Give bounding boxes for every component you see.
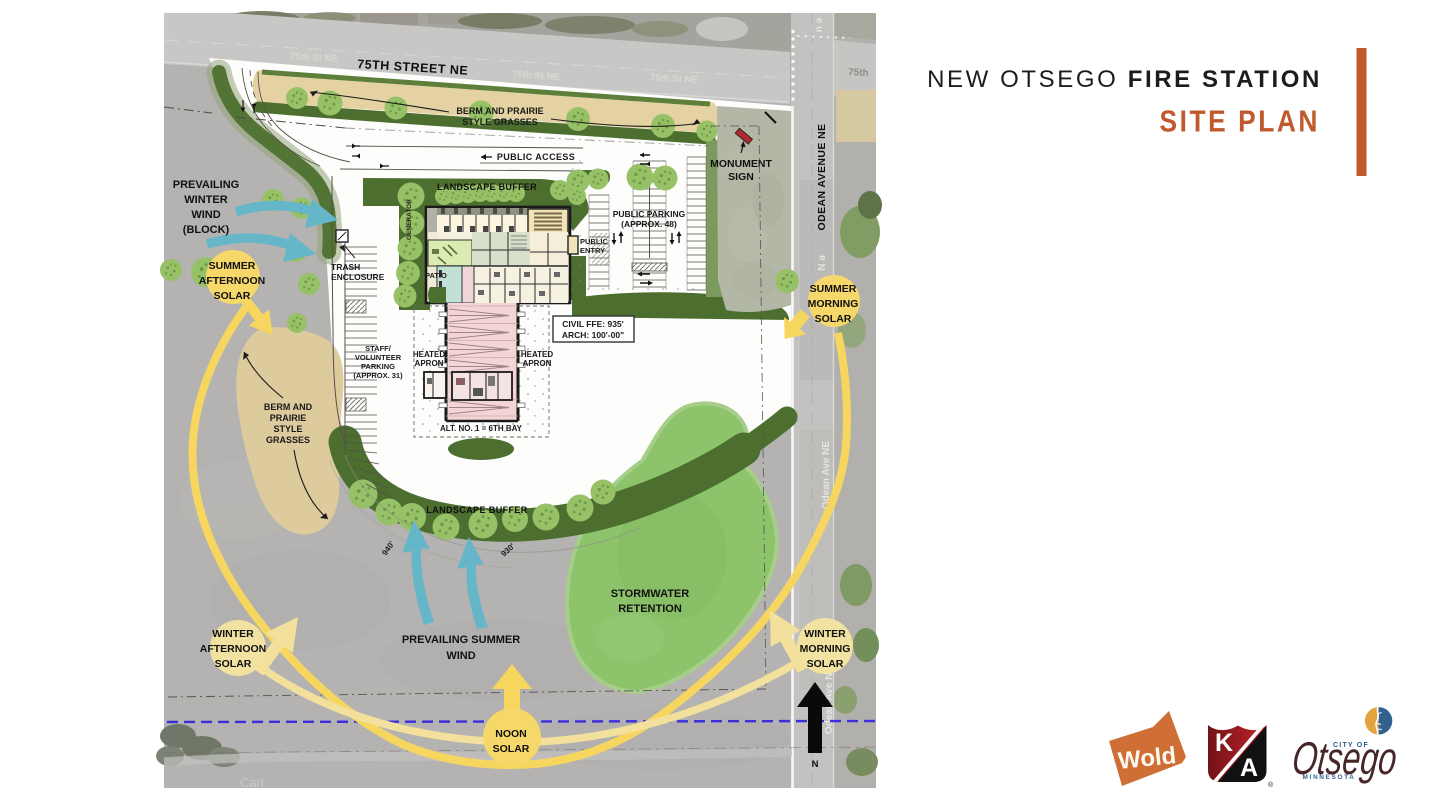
svg-text:PATIO: PATIO [425, 271, 447, 280]
svg-text:N ǝ: N ǝ [817, 255, 828, 271]
svg-text:SUMMER: SUMMER [810, 283, 857, 295]
svg-text:AFTERNOON: AFTERNOON [199, 275, 266, 287]
svg-text:STAFF/: STAFF/ [365, 344, 392, 353]
svg-text:GENERATOR: GENERATOR [406, 199, 413, 240]
svg-text:BERM AND PRAIRIE: BERM AND PRAIRIE [456, 106, 543, 116]
svg-text:WIND: WIND [446, 650, 475, 662]
svg-text:PUBLIC ACCESS: PUBLIC ACCESS [497, 152, 575, 162]
svg-text:PUBLIC PARKING: PUBLIC PARKING [613, 209, 686, 219]
svg-text:Wold: Wold [1117, 742, 1178, 775]
svg-text:BERM AND: BERM AND [264, 402, 313, 412]
svg-text:MINNESOTA: MINNESOTA [1303, 774, 1356, 781]
svg-text:Carl: Carl [240, 775, 264, 790]
svg-text:NOON: NOON [495, 728, 527, 740]
svg-text:A: A [1240, 754, 1258, 782]
svg-text:WINTER: WINTER [212, 628, 254, 640]
svg-text:RETENTION: RETENTION [618, 603, 682, 615]
svg-text:SITE PLAN: SITE PLAN [1160, 105, 1320, 139]
svg-text:AFTERNOON: AFTERNOON [200, 643, 267, 655]
svg-text:PREVAILING: PREVAILING [173, 179, 239, 191]
svg-text:APRON: APRON [523, 359, 552, 368]
svg-text:VOLUNTEER: VOLUNTEER [355, 353, 402, 362]
svg-text:SUMMER: SUMMER [209, 260, 256, 272]
svg-text:WINTER: WINTER [804, 628, 846, 640]
svg-text:SOLAR: SOLAR [807, 658, 844, 670]
svg-text:ENCLOSURE: ENCLOSURE [331, 272, 385, 282]
svg-text:75th: 75th [848, 67, 869, 79]
svg-text:HEATED: HEATED [413, 350, 446, 359]
svg-text:PARKING: PARKING [361, 362, 395, 371]
svg-text:MONUMENT: MONUMENT [710, 158, 772, 170]
svg-text:n ǝ: n ǝ [814, 17, 825, 32]
svg-text:CIVIL FFE: 935': CIVIL FFE: 935' [562, 319, 623, 329]
svg-text:ODEAN AVENUE NE: ODEAN AVENUE NE [816, 124, 828, 231]
svg-text:PRAIRIE: PRAIRIE [270, 413, 307, 423]
svg-text:STYLE: STYLE [273, 424, 302, 434]
svg-text:APRON: APRON [415, 359, 444, 368]
svg-text:SIGN: SIGN [728, 171, 754, 183]
svg-text:WIND: WIND [191, 209, 220, 221]
svg-text:(BLOCK): (BLOCK) [183, 224, 230, 236]
svg-text:ARCH: 100'-00": ARCH: 100'-00" [562, 330, 624, 340]
svg-text:ALT. NO. 1 = 6TH BAY: ALT. NO. 1 = 6TH BAY [440, 424, 523, 433]
svg-text:SOLAR: SOLAR [493, 743, 530, 755]
svg-text:WINTER: WINTER [184, 194, 227, 206]
svg-text:MORNING: MORNING [808, 298, 859, 310]
svg-text:LANDSCAPE BUFFER: LANDSCAPE BUFFER [426, 505, 528, 515]
svg-text:®: ® [1268, 781, 1274, 789]
svg-text:PREVAILING SUMMER: PREVAILING SUMMER [402, 634, 520, 646]
svg-text:LANDSCAPE BUFFER: LANDSCAPE BUFFER [437, 182, 537, 192]
svg-text:SOLAR: SOLAR [815, 313, 852, 325]
svg-text:(APPROX. 31): (APPROX. 31) [353, 371, 403, 380]
svg-text:(APPROX. 48): (APPROX. 48) [621, 219, 677, 229]
svg-text:N: N [812, 759, 819, 770]
svg-text:K: K [1215, 729, 1233, 757]
svg-text:HEATED: HEATED [521, 350, 554, 359]
svg-text:GRASSES: GRASSES [266, 435, 310, 445]
svg-text:TRASH: TRASH [331, 262, 360, 272]
svg-text:STORMWATER: STORMWATER [611, 588, 689, 600]
svg-text:STYLE GRASSES: STYLE GRASSES [462, 117, 538, 127]
svg-text:SOLAR: SOLAR [215, 658, 252, 670]
svg-text:NEW OTSEGO FIRE STATION: NEW OTSEGO FIRE STATION [927, 66, 1322, 93]
svg-text:SOLAR: SOLAR [214, 290, 251, 302]
svg-text:MORNING: MORNING [800, 643, 851, 655]
